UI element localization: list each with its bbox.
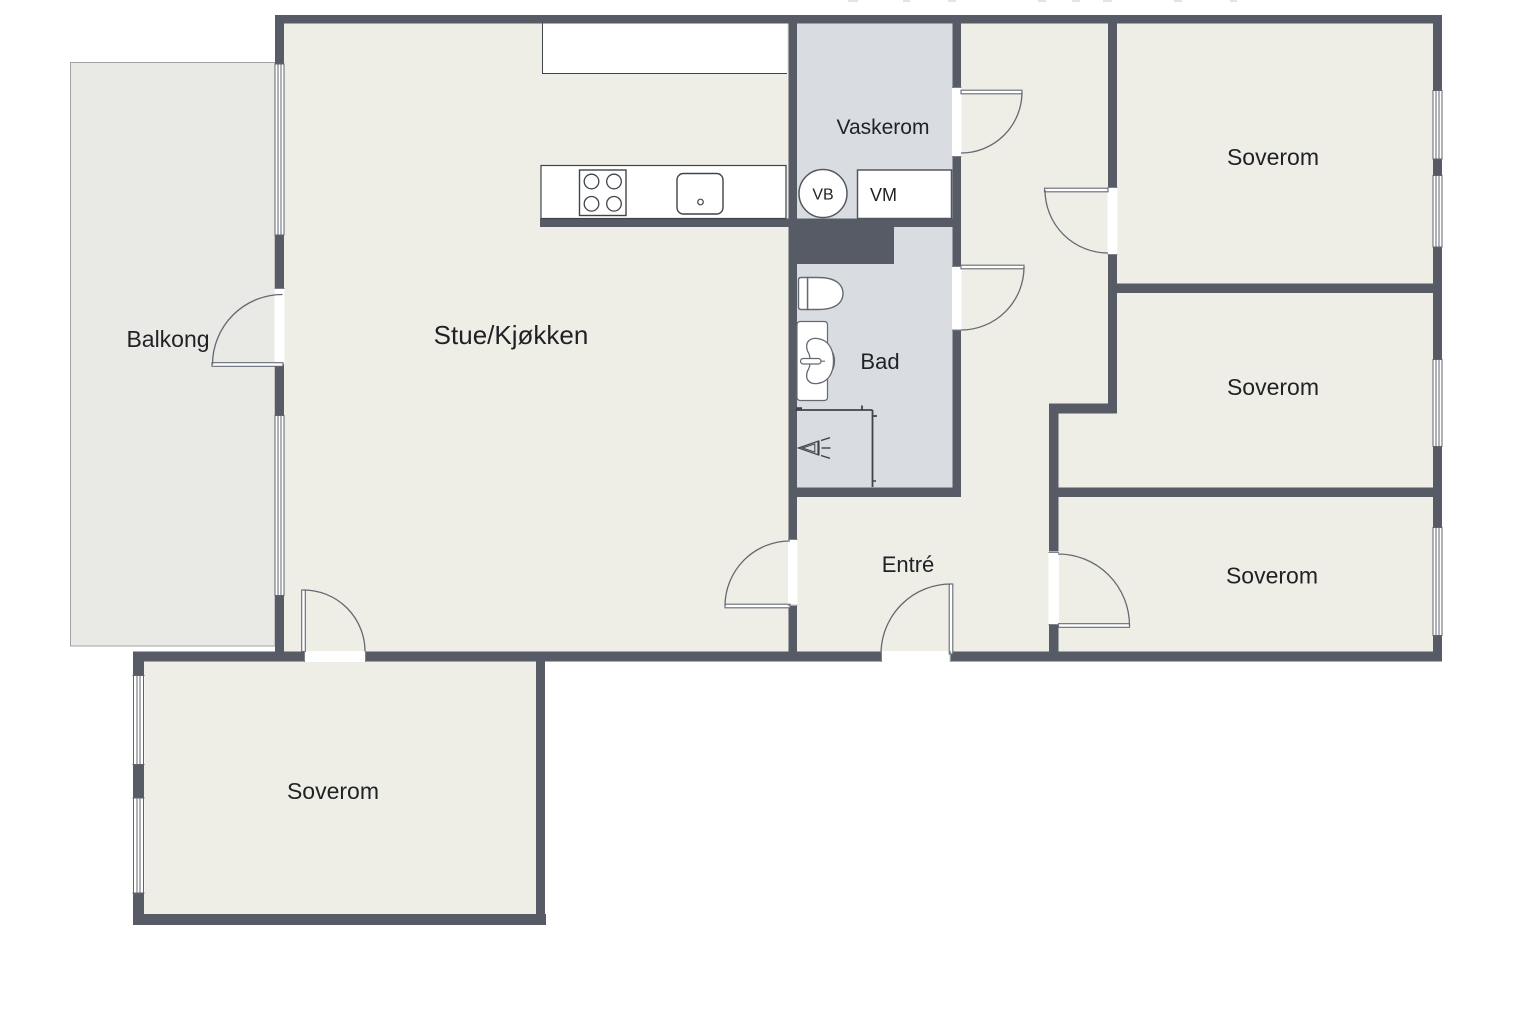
svg-text:Soverom: Soverom — [1227, 374, 1319, 400]
svg-text:Soverom: Soverom — [1227, 144, 1319, 170]
svg-text:VM: VM — [870, 185, 897, 205]
svg-text:Soverom: Soverom — [287, 778, 379, 804]
svg-text:Soverom: Soverom — [1226, 563, 1318, 589]
svg-text:Entré: Entré — [882, 552, 935, 577]
svg-text:Balkong: Balkong — [126, 326, 209, 352]
svg-text:Vaskerom: Vaskerom — [837, 116, 930, 139]
svg-text:Stue/Kjøkken: Stue/Kjøkken — [434, 320, 589, 350]
svg-text:VB: VB — [812, 187, 833, 204]
svg-text:Bad: Bad — [860, 349, 899, 374]
